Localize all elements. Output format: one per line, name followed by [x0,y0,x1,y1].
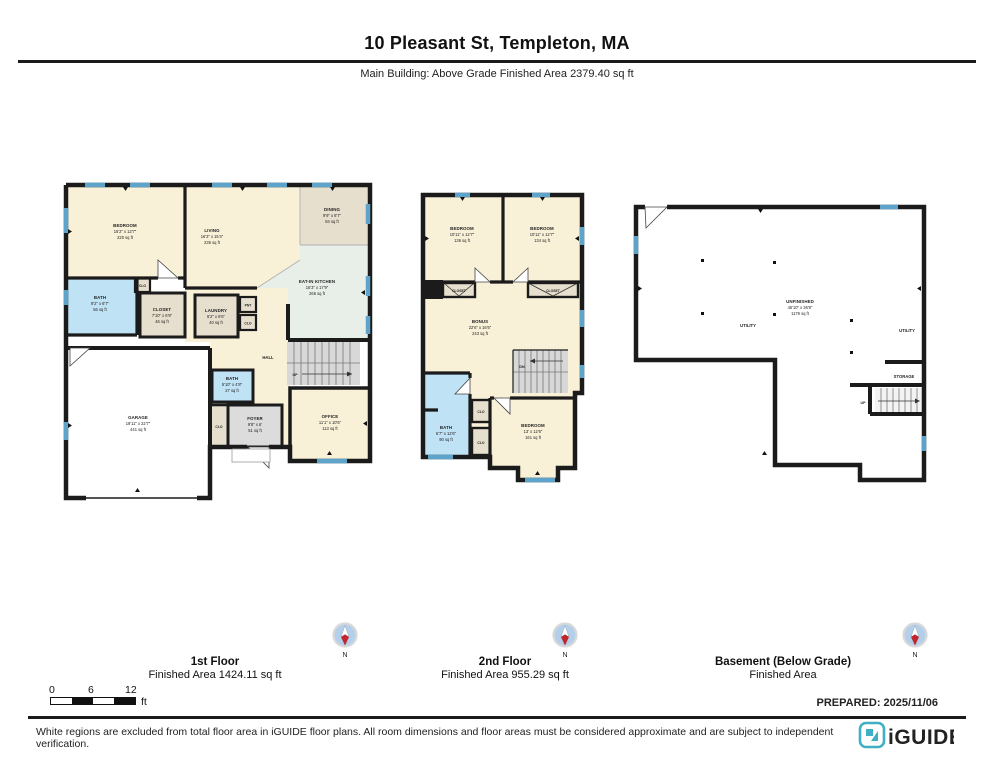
iguide-logo-text: iGUIDE [888,726,954,749]
svg-text:5'10" x 4'8": 5'10" x 4'8" [222,382,243,387]
label-storage: STORAGE [894,374,915,379]
compass-2nd: N [548,620,582,660]
svg-text:27 sq ft: 27 sq ft [225,388,239,393]
label-bath2: BATH [226,376,238,381]
stair-treads-basement [875,388,925,414]
label-foyer: FOYER [247,416,263,421]
compass-n-label: N [912,652,917,659]
svg-text:10'11" x 12'7": 10'11" x 12'7" [530,232,555,237]
compass-1st: N [328,620,362,660]
svg-text:441 sq ft: 441 sq ft [130,427,147,432]
label-closet: CLOSET [153,307,172,312]
label-living: LIVING [204,228,220,233]
svg-text:UP: UP [293,373,299,377]
svg-text:CLOSET: CLOSET [452,289,467,293]
svg-text:16'2" x 13'7": 16'2" x 13'7" [114,229,137,234]
label-garage: GARAGE [128,415,148,420]
scale-bar: 0 6 12 ft [45,684,195,716]
svg-text:CLO: CLO [139,284,147,288]
svg-text:40 sq ft: 40 sq ft [209,320,223,325]
label-kitchen: EAT-IN KITCHEN [299,279,335,284]
floor-area-2nd: Finished Area 955.29 sq ft [375,669,635,681]
caption-1st-floor: 1st Floor Finished Area 1424.11 sq ft [85,656,345,681]
caption-basement: Basement (Below Grade) Finished Area [653,656,913,681]
floor-area-basement: Finished Area [653,669,913,681]
svg-text:9'2" x 6'7": 9'2" x 6'7" [91,301,109,306]
label-bedroom-left: BEDROOM [450,226,474,231]
scale-bar-segments [50,697,136,705]
svg-text:266 sq ft: 266 sq ft [309,291,326,296]
scale-six: 6 [88,684,94,696]
floor-name-basement: Basement (Below Grade) [653,656,913,668]
label-dining: DINING [324,207,340,212]
svg-text:236 sq ft: 236 sq ft [204,240,221,245]
disclaimer-text: White regions are excluded from total fl… [36,726,836,750]
front-step [232,449,270,462]
label-bedroom-bottom: BEDROOM [521,423,545,428]
svg-text:90 sq ft: 90 sq ft [439,437,453,442]
label-laundry: LAUNDRY [205,308,227,313]
floor-name-1st: 1st Floor [85,656,345,668]
floor-area-1st: Finished Area 1424.11 sq ft [85,669,345,681]
svg-text:11'1" x 10'5": 11'1" x 10'5" [319,420,342,425]
footprint-basement [636,207,924,480]
page-subtitle: Main Building: Above Grade Finished Area… [0,68,994,80]
svg-text:CLO: CLO [477,441,485,445]
header-divider [18,60,976,63]
svg-text:16'3" x 17'9": 16'3" x 17'9" [306,285,329,290]
stairs-1st [287,342,360,385]
svg-text:243 sq ft: 243 sq ft [472,331,489,336]
svg-text:CLOSET: CLOSET [546,289,561,293]
compass-basement: N [898,620,932,660]
label-bonus: BONUS [472,319,488,324]
label-utility-right: UTILITY [899,328,915,333]
floorplan-basement: UNFINISHED 45'10" x 36'8" 1179 sq ft UTI… [630,198,930,488]
prepared-date: PREPARED: 2025/11/06 [817,697,938,709]
floor-name-2nd: 2nd Floor [375,656,635,668]
svg-text:PNT: PNT [245,304,253,308]
svg-text:84 sq ft: 84 sq ft [325,219,339,224]
label-hall: HALL [262,355,274,360]
svg-text:9'8" x 6': 9'8" x 6' [248,422,262,427]
svg-text:56 sq ft: 56 sq ft [93,307,107,312]
label-bedroom-right: BEDROOM [530,226,554,231]
svg-text:9'9" x 8'7": 9'9" x 8'7" [323,213,341,218]
svg-text:13' x 12'6": 13' x 12'6" [524,429,543,434]
svg-text:UP: UP [861,401,867,405]
svg-text:19'11" x 22'7": 19'11" x 22'7" [126,421,151,426]
caption-2nd-floor: 2nd Floor Finished Area 955.29 sq ft [375,656,635,681]
svg-text:46 sq ft: 46 sq ft [155,319,169,324]
scale-unit: ft [141,696,147,708]
svg-text:136 sq ft: 136 sq ft [454,238,471,243]
svg-text:DN: DN [519,365,525,369]
svg-text:CLO: CLO [244,322,252,326]
svg-text:161 sq ft: 161 sq ft [525,435,542,440]
label-utility-left: UTILITY [740,323,756,328]
label-unfinished: UNFINISHED [786,299,814,304]
iguide-logo: iGUIDE [858,719,954,751]
svg-text:CLO: CLO [215,425,223,429]
label-office: OFFICE [322,414,339,419]
label-bath-2nd: BATH [440,425,452,430]
svg-text:113 sq ft: 113 sq ft [322,426,338,431]
svg-text:6'2" x 6'6": 6'2" x 6'6" [207,314,225,319]
svg-text:51 sq ft: 51 sq ft [248,428,262,433]
svg-text:45'10" x 36'8": 45'10" x 36'8" [788,305,813,310]
label-bath1: BATH [94,295,106,300]
svg-text:16'3" x 15'4": 16'3" x 15'4" [201,234,224,239]
svg-text:10'11" x 12'7": 10'11" x 12'7" [450,232,475,237]
svg-text:1179 sq ft: 1179 sq ft [791,311,810,316]
scale-twelve: 12 [125,684,137,696]
svg-text:7'10" x 6'9": 7'10" x 6'9" [152,313,173,318]
label-bedroom: BEDROOM [113,223,137,228]
svg-text:134 sq ft: 134 sq ft [534,238,551,243]
scale-zero: 0 [49,684,55,696]
page-title: 10 Pleasant St, Templeton, MA [0,33,994,54]
svg-text:22'6" x 16'6": 22'6" x 16'6" [469,325,492,330]
svg-text:CLO: CLO [477,410,485,414]
floorplan-page: 10 Pleasant St, Templeton, MA Main Build… [0,0,994,768]
floorplan-1st-floor: BEDROOM 16'2" x 13'7" 220 sq ft LIVING 1… [62,176,382,512]
svg-text:220 sq ft: 220 sq ft [117,235,134,240]
footer-divider [28,716,966,719]
floorplan-2nd-floor: BEDROOM 10'11" x 12'7" 136 sq ft BEDROOM… [418,188,588,484]
stairs-2nd [513,350,568,393]
svg-text:6'7" x 12'6": 6'7" x 12'6" [436,431,457,436]
